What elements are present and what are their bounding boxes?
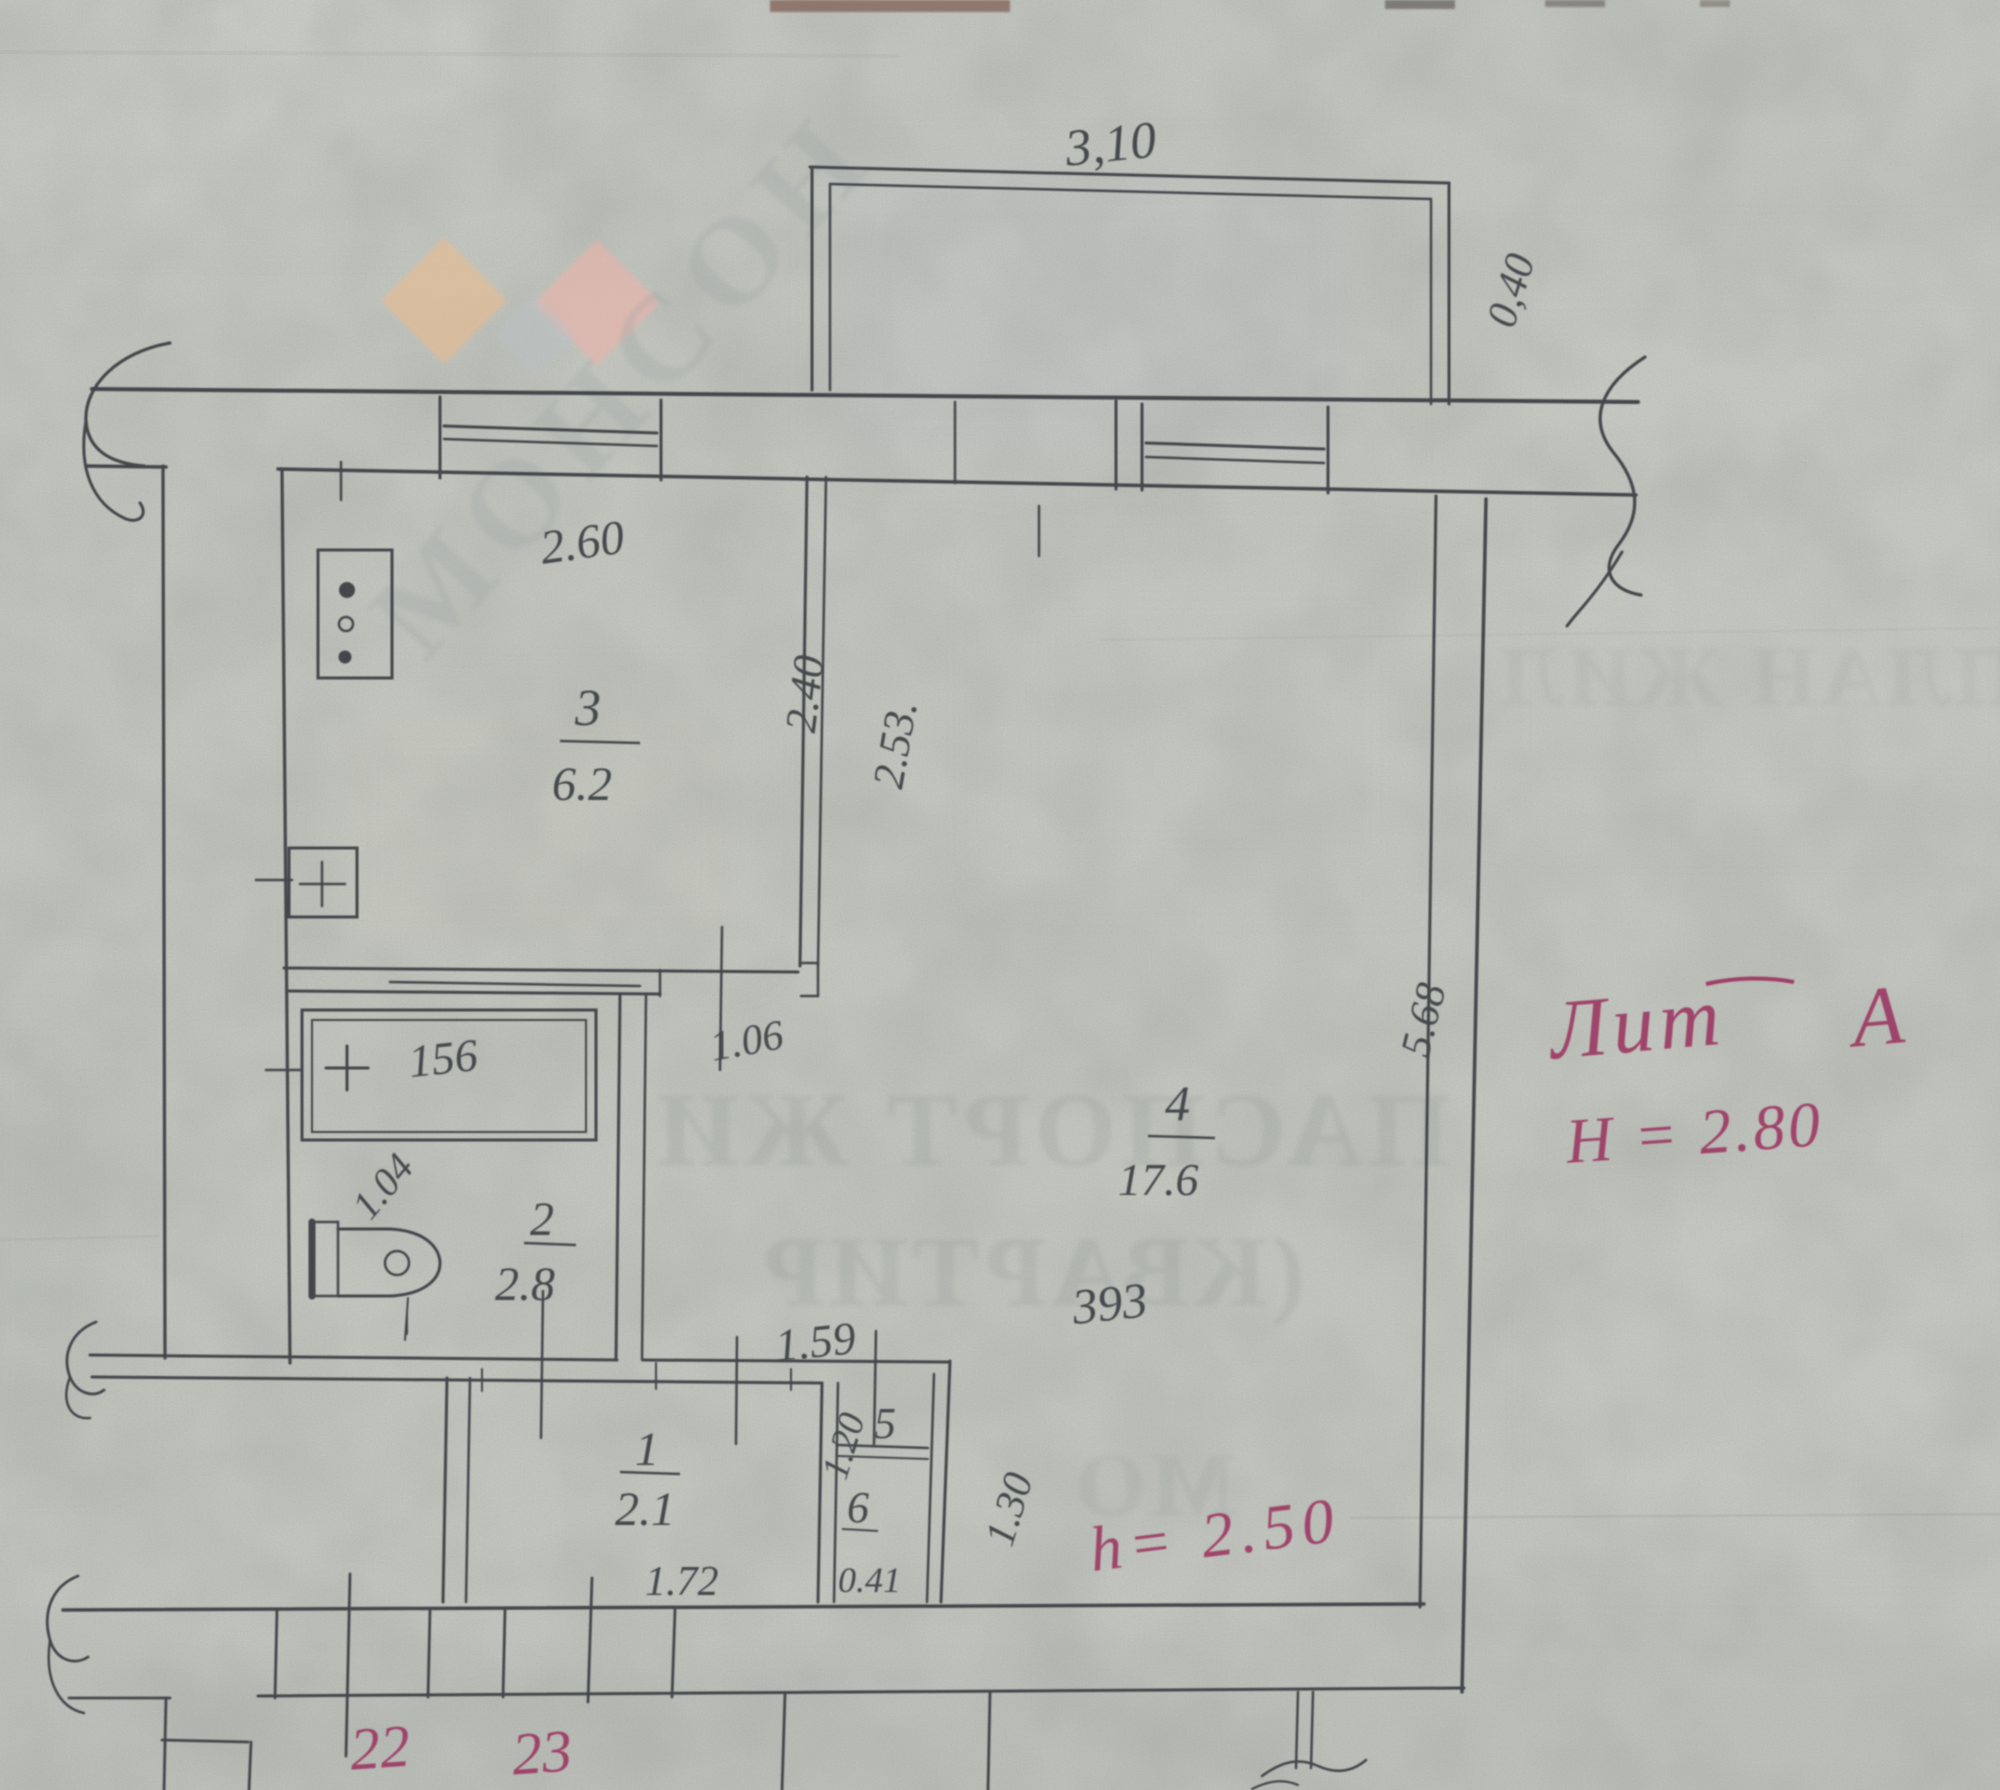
svg-text:3: 3 <box>574 680 601 737</box>
svg-text:2.40: 2.40 <box>776 653 834 735</box>
svg-text:6.2: 6.2 <box>552 758 612 811</box>
svg-text:156: 156 <box>406 1029 480 1087</box>
svg-text:3,10: 3,10 <box>1062 111 1159 177</box>
svg-text:6: 6 <box>847 1483 869 1532</box>
svg-text:Лит: Лит <box>1543 970 1728 1078</box>
svg-text:2.1: 2.1 <box>615 1483 675 1536</box>
svg-text:1.59: 1.59 <box>773 1312 858 1371</box>
svg-text:ПАСПОРТ ЖИ: ПАСПОРТ ЖИ <box>651 1071 1450 1188</box>
svg-text:22: 22 <box>348 1713 412 1783</box>
svg-text:2: 2 <box>530 1193 554 1246</box>
svg-text:5: 5 <box>874 1399 896 1448</box>
svg-text:1: 1 <box>635 1423 659 1476</box>
svg-text:2.8: 2.8 <box>495 1258 555 1311</box>
svg-text:0.41: 0.41 <box>838 1560 901 1600</box>
svg-text:17.6: 17.6 <box>1118 1154 1199 1205</box>
svg-text:(КВАРТИР: (КВАРТИР <box>759 1216 1305 1327</box>
svg-text:1.72: 1.72 <box>645 1559 719 1605</box>
svg-text:ПЛАН ЖИЛ: ПЛАН ЖИЛ <box>1496 630 2000 724</box>
svg-text:4: 4 <box>1165 1075 1190 1131</box>
svg-text:23: 23 <box>510 1717 574 1787</box>
svg-text:393: 393 <box>1069 1271 1150 1335</box>
